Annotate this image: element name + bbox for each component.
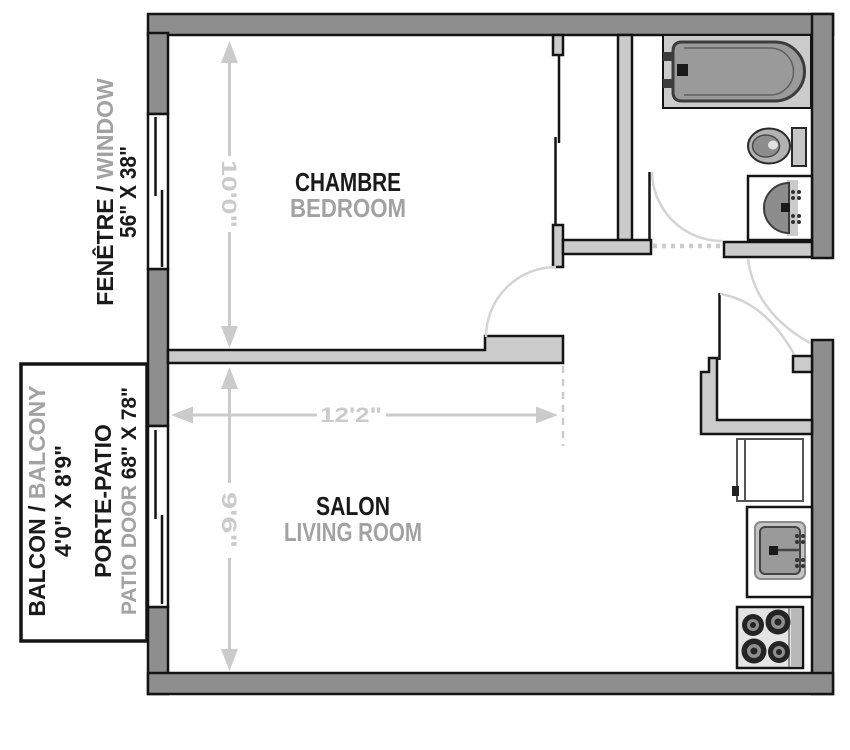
bathtub-faucet-icon [677,64,688,76]
window-label-name: FENÊTRE / WINDOW [91,78,118,306]
window-frame [148,114,168,269]
bathroom-west-wall [618,35,632,240]
bedroom-door-arc [486,267,556,337]
sink-faucet-icon [769,546,778,555]
patio-door-label-fr: PORTE-PATIO [90,424,116,578]
stove [737,607,803,668]
bathtub-knob-icon [663,52,672,61]
bathroom-south-wall-right [724,242,812,257]
window-size-label: 56" X 38" [115,146,141,238]
wall-bottom [148,673,833,694]
arrow-up-icon [221,367,238,389]
bedroom-door-jamb [553,225,563,267]
balcony: BALCON / BALCONY 4'0" X 8'9" PORTE-PATIO… [21,364,147,641]
bathroom-door-arc [652,172,722,241]
wall-right-upper [812,14,833,258]
wall-left-upper [148,33,168,114]
toilet-tank [792,128,806,166]
arrow-left-icon [171,407,193,424]
patio-door [148,426,168,607]
bathtub-basin [673,42,804,101]
dimension-bedroom-depth: 10'0" [217,41,240,348]
window-label: FENÊTRE / WINDOW 56" X 38" [91,78,141,306]
stove-side-panel [791,609,801,666]
arrow-down-icon [221,326,238,348]
sink-faucet-icon [781,203,790,212]
refrigerator [732,439,803,501]
toilet-bowl-highlight [768,141,778,150]
living-room-label-en: LIVING ROOM [284,517,422,547]
balcony-label: BALCON / BALCONY [24,385,50,616]
balcony-size-label: 4'0" X 8'9" [50,445,76,557]
refrigerator-body [745,439,803,501]
unit-width-value: 12'2" [320,404,382,427]
patio-door-label-en: PATIO DOOR 68" X 78" [118,387,141,615]
living-depth-value: 9'6" [217,492,240,548]
bedroom-window [148,114,168,269]
vanity-sink [748,176,812,240]
floor-plan: BALCON / BALCONY 4'0" X 8'9" PORTE-PATIO… [0,0,850,750]
patio-door-frame [148,426,168,607]
arrow-up-icon [221,41,238,63]
entry-door-jamb [793,356,812,372]
wall-top [148,14,833,35]
wall-right-lower [812,340,833,694]
kitchen-sink [747,507,812,597]
bathroom-south-wall-left [563,240,651,254]
arrow-down-icon [221,649,238,671]
bedroom-label-en: BEDROOM [290,193,406,223]
bathtub [663,35,811,108]
bathtub-knob-icon [663,79,672,88]
refrigerator-handle-icon [732,486,739,496]
dimension-living-depth: 9'6" [217,367,240,671]
toilet [748,128,806,166]
bedroom-east-wall-stub [553,35,563,55]
bedroom-depth-value: 10'0" [217,160,240,228]
wall-left-middle [148,269,168,426]
arrow-right-icon [536,407,558,424]
